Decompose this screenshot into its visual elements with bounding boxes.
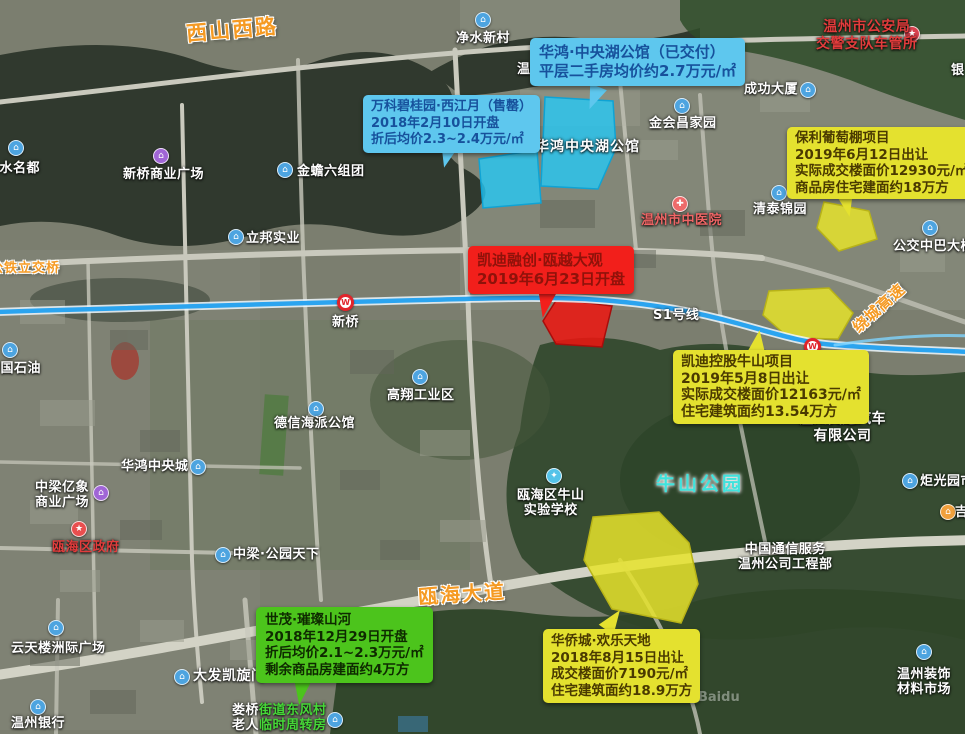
poi-label-jinhuichang: 金会昌家园: [649, 116, 717, 131]
bubble-line: 实际成交楼面价12930元/㎡: [795, 163, 965, 180]
poi-label-gongjiao: 公交中巴大楼: [893, 239, 965, 254]
bubble-line: 保利葡萄棚项目: [795, 130, 965, 147]
poi-label-partial-bank: 银: [951, 63, 965, 78]
building-icon: ⌂: [800, 82, 816, 98]
residence-icon: ⌂: [475, 12, 491, 28]
building-icon: ⌂: [48, 620, 64, 636]
poi-label-line: 商业广场: [35, 495, 89, 510]
residence-icon: ⌂: [8, 140, 24, 156]
poi-label-cheguansuo: 温州市公安局 交警支队车管所: [816, 19, 918, 52]
residence-icon: ⌂: [174, 669, 190, 685]
poi-label-dafa: 大发凯旋门: [193, 668, 266, 685]
poi-label-gaoxiang: 高翔工业区: [387, 388, 455, 403]
annotation-bubble-wanke: 万科碧桂园·西江月（售罄） 2018年2月10日开盘 折后均价2.3~2.4万元…: [363, 95, 540, 153]
residence-icon: ⌂: [674, 98, 690, 114]
map-watermark: Baidu: [698, 690, 740, 705]
bubble-line: 商品房住宅建面约18万方: [795, 180, 965, 197]
gas-station-icon: ⌂: [2, 342, 18, 358]
annotation-bubble-kaidi-niushan: 凯迪控股牛山项目 2019年5月8日出让 实际成交楼面价12163元/㎡ 住宅建…: [673, 350, 869, 424]
annotation-bubble-kaidi-rongchuang: 凯迪融创·瓯越大观 2019年6月23日开盘: [468, 246, 634, 294]
poi-label-zhongshiyou: 中国石油: [0, 361, 41, 376]
residence-icon: ⌂: [215, 547, 231, 563]
residence-icon: ⌂: [308, 401, 324, 417]
residence-icon: ⌂: [190, 459, 206, 475]
poi-label-zhongliang-park: 中梁·公园天下: [233, 547, 319, 562]
residence-icon: ⌂: [277, 162, 293, 178]
bubble-line: 剩余商品房建面约4万方: [265, 662, 424, 679]
market-icon: ⌂: [902, 473, 918, 489]
poi-label-line: 中国通信服务: [745, 542, 826, 557]
bubble-line: 凯迪控股牛山项目: [681, 354, 861, 371]
poi-label-huahong-city: 华鸿中央城: [121, 459, 189, 474]
poi-label-libang: 立邦实业: [246, 231, 300, 246]
poi-label-line-green: 街道东风村: [259, 703, 327, 718]
poi-label-line: 温州装饰: [897, 667, 951, 682]
road-label-gongtielijiao: 公铁立交桥: [0, 257, 60, 276]
bubble-line: 华侨城·欢乐天地: [551, 633, 692, 650]
area-label-huahong-lake: 华鸿中央湖公馆: [535, 139, 640, 156]
mall-icon: ⌂: [93, 485, 109, 501]
poi-label-line-green: 临时周转房: [259, 718, 327, 733]
government-star-icon: ★: [71, 521, 87, 537]
annotation-bubble-huaqiaocheng: 华侨城·欢乐天地 2018年8月15日出让 成交楼面价7190元/㎡ 住宅建筑面…: [543, 629, 700, 703]
industry-icon: ⌂: [412, 369, 428, 385]
bubble-line: 平层二手房均价约2.7万元/㎡: [539, 62, 736, 81]
poi-label-line: 中梁亿象: [35, 480, 89, 495]
metro-line-label: S1号线: [653, 308, 699, 323]
bubble-line: 世茂·璀璨山河: [265, 612, 424, 629]
annotation-bubble-shimao: 世茂·璀璨山河 2018年12月29日开盘 折后均价2.1~2.3万元/㎡ 剩余…: [256, 607, 433, 683]
residence-icon: ⌂: [771, 185, 787, 201]
company-icon: ⌂: [228, 229, 244, 245]
poi-label-line: 交警支队车管所: [816, 36, 918, 52]
market-icon: ⌂: [916, 644, 932, 660]
hospital-icon: ✚: [672, 196, 688, 212]
poi-icon: ⌂: [940, 504, 956, 520]
poi-label-yuntianlou: 云天楼洲际广场: [11, 641, 106, 656]
annotation-bubble-huahong: 华鸿·中央湖公馆（已交付） 平层二手房均价约2.7万元/㎡: [530, 38, 745, 86]
poi-label-shanshuimingdu: 山水名都: [0, 161, 40, 176]
bubble-line: 2019年6月12日出让: [795, 147, 965, 164]
bubble-line: 华鸿·中央湖公馆（已交付）: [539, 43, 736, 62]
bubble-line: 2018年12月29日开盘: [265, 629, 424, 646]
bubble-line: 折后均价2.1~2.3万元/㎡: [265, 645, 424, 662]
road-label-ouhaidadao: 瓯海大道: [417, 575, 507, 610]
poi-label-tongxin: 中国通信服务 温州公司工程部: [738, 542, 833, 573]
poi-label-zhongliang-yixiang: 中梁亿象 商业广场: [35, 480, 89, 511]
mall-icon: ⌂: [153, 148, 169, 164]
poi-label-louqiao: 娄桥街道东风村 老人临时周转房: [232, 703, 327, 734]
poi-label-dexin: 德信海派公馆: [274, 416, 355, 431]
bubble-line: 2018年8月15日出让: [551, 650, 692, 667]
poi-label-ouhai-gov: 瓯海区政府: [52, 540, 120, 555]
poi-label-wenzhou-bank: 温州银行: [11, 716, 65, 731]
building-icon: ⌂: [922, 220, 938, 236]
poi-label-xinqiao-plaza: 新桥商业广场: [123, 167, 204, 182]
bubble-line: 实际成交楼面价12163元/㎡: [681, 387, 861, 404]
poi-label-jingshuixincun: 净水新村: [456, 31, 510, 46]
poi-label-juguang: 炬光园市场: [920, 474, 965, 489]
school-icon: ✦: [546, 468, 562, 484]
annotation-bubble-baoli: 保利葡萄棚项目 2019年6月12日出让 实际成交楼面价12930元/㎡ 商品房…: [787, 127, 965, 199]
poi-label-line: 瓯海区牛山: [517, 488, 585, 503]
poi-label-zhongyiyuan: 温州市中医院: [641, 213, 722, 228]
poi-label-zhuangshi: 温州装饰 材料市场: [897, 667, 951, 698]
station-label-xinqiao: 新桥: [332, 315, 359, 330]
poi-label-line: 温州市公安局: [823, 19, 910, 35]
bubble-line: 2019年5月8日出让: [681, 371, 861, 388]
bubble-line: 万科碧桂园·西江月（售罄）: [371, 99, 532, 116]
bubble-line: 凯迪融创·瓯越大观: [477, 251, 625, 270]
poi-label-qingtai: 清泰锦园: [753, 202, 807, 217]
bubble-line: 住宅建筑面约18.9万方: [551, 683, 692, 700]
park-label-niushan: 牛山公园: [656, 473, 744, 495]
poi-label-niushan-school: 瓯海区牛山 实验学校: [517, 488, 585, 519]
satellite-map-canvas[interactable]: ⌂ ⌂ ⌂ ⌂ ⌂ ⌂ ⌂ ⌂ ✚ ⌂ ⌂ ⌂ ⌂ ⌂ ⌂ ★ ⌂ ✦ ⌂ ⌂ …: [0, 0, 965, 734]
poi-label-chenggong: 成功大厦: [744, 82, 798, 97]
parcel-huaqiaocheng: [584, 512, 698, 623]
bank-icon: ⌂: [30, 699, 46, 715]
metro-station-icon-xinqiao: W: [337, 294, 354, 311]
bubble-line: 成交楼面价7190元/㎡: [551, 666, 692, 683]
poi-label-line: 老人: [232, 718, 259, 733]
bubble-line: 折后均价2.3~2.4万元/㎡: [371, 132, 532, 149]
bubble-line: 住宅建筑面约13.54万方: [681, 404, 861, 421]
bubble-line: 2019年6月23日开盘: [477, 270, 625, 289]
poi-label-line: 有限公司: [814, 428, 872, 444]
poi-label-jinchan: 金蟾六组团: [297, 164, 365, 179]
poi-label-line: 娄桥: [232, 703, 259, 718]
residence-icon: ⌂: [327, 712, 343, 728]
poi-label-line: 材料市场: [897, 682, 951, 697]
poi-label-line: 温州公司工程部: [738, 557, 833, 572]
bubble-line: 2018年2月10日开盘: [371, 116, 532, 133]
poi-label-partial-ji: 吉: [955, 505, 965, 520]
poi-label-line: 实验学校: [524, 503, 578, 518]
